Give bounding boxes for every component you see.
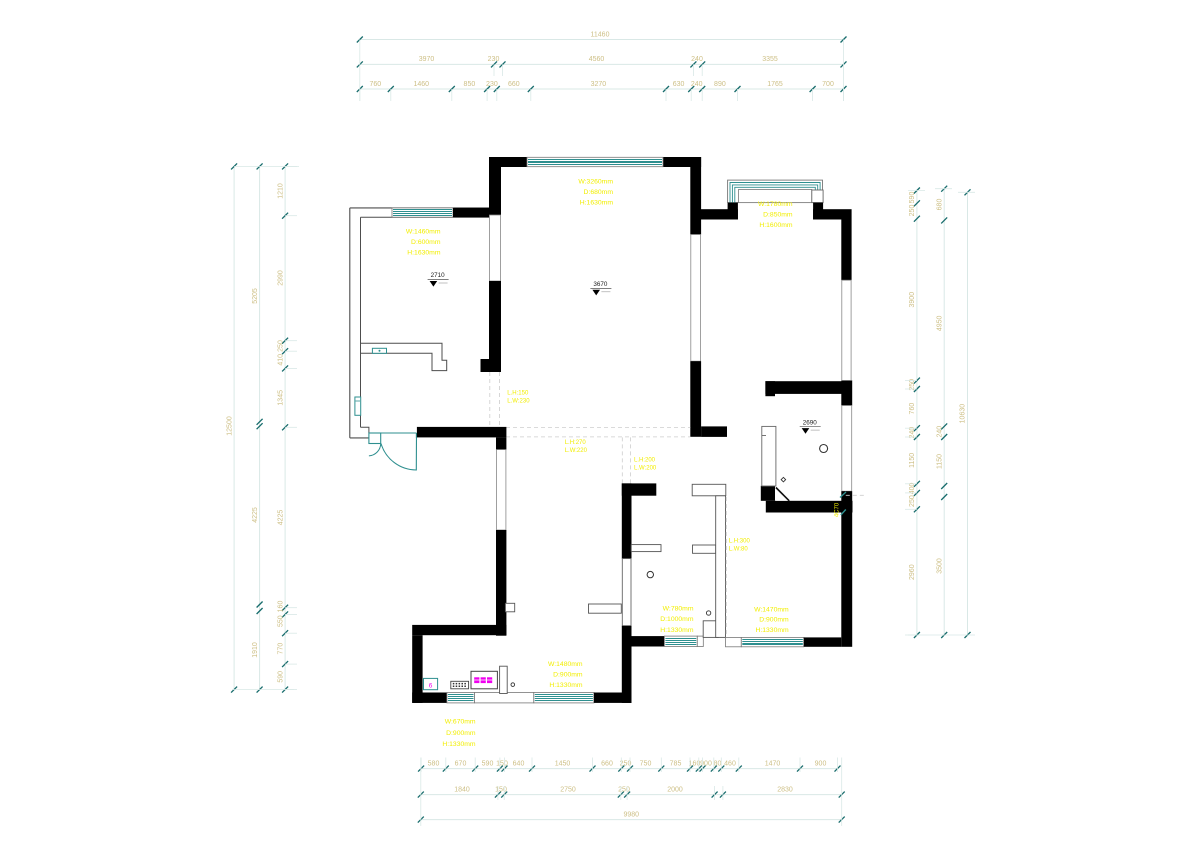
svg-text:4225: 4225 [277, 510, 284, 526]
svg-text:W:1460mm: W:1460mm [406, 229, 441, 236]
svg-text:4225: 4225 [252, 507, 259, 523]
svg-text:150: 150 [495, 786, 507, 793]
svg-text:2990: 2990 [277, 270, 284, 286]
svg-text:H:1330mm: H:1330mm [549, 682, 583, 689]
svg-text:4950: 4950 [936, 316, 943, 332]
svg-text:W:3260mm: W:3260mm [578, 179, 613, 186]
svg-text:700: 700 [822, 81, 834, 88]
svg-text:770: 770 [277, 643, 284, 655]
svg-text:550: 550 [277, 615, 284, 627]
svg-text:1470: 1470 [765, 760, 781, 767]
svg-text:2750: 2750 [560, 786, 576, 793]
svg-text:1150: 1150 [936, 454, 943, 469]
svg-text:760: 760 [369, 81, 381, 88]
svg-text:H:1630mm: H:1630mm [580, 200, 614, 207]
svg-text:L.H:150: L.H:150 [507, 391, 529, 397]
svg-text:1345: 1345 [277, 390, 284, 406]
svg-text:H:1600mm: H:1600mm [759, 222, 793, 229]
svg-text:D:680mm: D:680mm [584, 189, 614, 196]
svg-text:240: 240 [691, 56, 703, 63]
svg-text:L.H:200: L.H:200 [634, 458, 656, 464]
svg-text:3670: 3670 [593, 281, 608, 288]
svg-text:890: 890 [714, 81, 726, 88]
svg-text:L.W:80: L.W:80 [729, 547, 749, 553]
svg-text:250: 250 [277, 340, 284, 352]
svg-text:4C70: 4C70 [835, 502, 841, 517]
svg-text:660: 660 [601, 760, 613, 767]
svg-text:W:1780mm: W:1780mm [758, 201, 793, 208]
svg-text:80: 80 [714, 760, 722, 767]
svg-text:590: 590 [909, 192, 916, 204]
svg-text:D:850mm: D:850mm [763, 211, 793, 218]
svg-text:H:1330mm: H:1330mm [755, 627, 789, 634]
svg-text:2000: 2000 [667, 786, 683, 793]
svg-text:10630: 10630 [960, 404, 967, 424]
svg-text:H:1330mm: H:1330mm [660, 627, 694, 634]
svg-text:W:1470mm: W:1470mm [754, 607, 789, 614]
svg-text:680: 680 [936, 199, 943, 211]
svg-text:590: 590 [277, 671, 284, 683]
svg-text:3355: 3355 [762, 56, 778, 63]
svg-text:1460: 1460 [414, 81, 430, 88]
svg-text:900: 900 [815, 760, 827, 767]
svg-text:D:1000mm: D:1000mm [660, 616, 694, 623]
svg-text:D:900mm: D:900mm [553, 672, 583, 679]
svg-text:L.W:200: L.W:200 [634, 466, 657, 472]
svg-text:630: 630 [673, 81, 685, 88]
svg-text:230: 230 [488, 56, 500, 63]
svg-text:3270: 3270 [591, 81, 607, 88]
svg-text:160: 160 [277, 601, 284, 613]
svg-text:785: 785 [670, 760, 682, 767]
svg-text:2710: 2710 [431, 272, 446, 279]
svg-text:410: 410 [277, 354, 284, 366]
svg-text:6: 6 [429, 683, 433, 690]
svg-text:L.W:220: L.W:220 [565, 448, 588, 454]
svg-text:1840: 1840 [454, 786, 470, 793]
svg-text:240: 240 [936, 426, 943, 438]
svg-text:640: 640 [513, 760, 525, 767]
svg-text:D:900mm: D:900mm [446, 730, 476, 737]
svg-text:11460: 11460 [591, 31, 610, 38]
svg-text:2830: 2830 [777, 786, 793, 793]
svg-text:240: 240 [691, 81, 703, 88]
svg-text:L.H:270: L.H:270 [565, 440, 587, 446]
svg-text:900: 900 [700, 760, 712, 767]
svg-text:3500: 3500 [936, 558, 943, 574]
svg-text:1910: 1910 [252, 642, 259, 658]
svg-text:H:1630mm: H:1630mm [407, 250, 441, 257]
svg-text:670: 670 [455, 760, 467, 767]
svg-text:580: 580 [428, 760, 440, 767]
svg-text:400: 400 [909, 482, 916, 494]
svg-text:150: 150 [496, 760, 508, 767]
svg-text:250: 250 [618, 786, 630, 793]
svg-text:750: 750 [640, 760, 652, 767]
svg-text:250: 250 [909, 205, 916, 217]
svg-text:3900: 3900 [909, 292, 916, 308]
svg-text:1150: 1150 [909, 453, 916, 468]
svg-text:1450: 1450 [555, 760, 571, 767]
svg-text:D:900mm: D:900mm [759, 617, 789, 624]
svg-text:3970: 3970 [419, 56, 435, 63]
svg-text:590: 590 [482, 760, 494, 767]
svg-text:W:1480mm: W:1480mm [548, 661, 583, 668]
svg-text:W:670mm: W:670mm [445, 718, 476, 725]
svg-text:2960: 2960 [909, 564, 916, 580]
svg-text:850: 850 [464, 81, 476, 88]
svg-text:4560: 4560 [589, 56, 605, 63]
svg-text:460: 460 [724, 760, 736, 767]
svg-text:W:780mm: W:780mm [663, 605, 694, 612]
svg-text:2690: 2690 [803, 419, 818, 426]
svg-text:1210: 1210 [277, 183, 284, 199]
svg-text:1765: 1765 [767, 81, 783, 88]
svg-text:L.W:230: L.W:230 [507, 399, 530, 405]
svg-text:5205: 5205 [252, 288, 259, 304]
svg-text:12500: 12500 [226, 416, 233, 436]
svg-text:L.H:300: L.H:300 [729, 539, 751, 545]
svg-text:660: 660 [508, 81, 520, 88]
svg-text:760: 760 [909, 403, 916, 415]
svg-text:230: 230 [486, 81, 498, 88]
svg-text:9980: 9980 [624, 811, 640, 818]
svg-text:H:1330mm: H:1330mm [442, 741, 476, 748]
svg-text:250: 250 [909, 495, 916, 507]
svg-text:D:600mm: D:600mm [411, 239, 441, 246]
